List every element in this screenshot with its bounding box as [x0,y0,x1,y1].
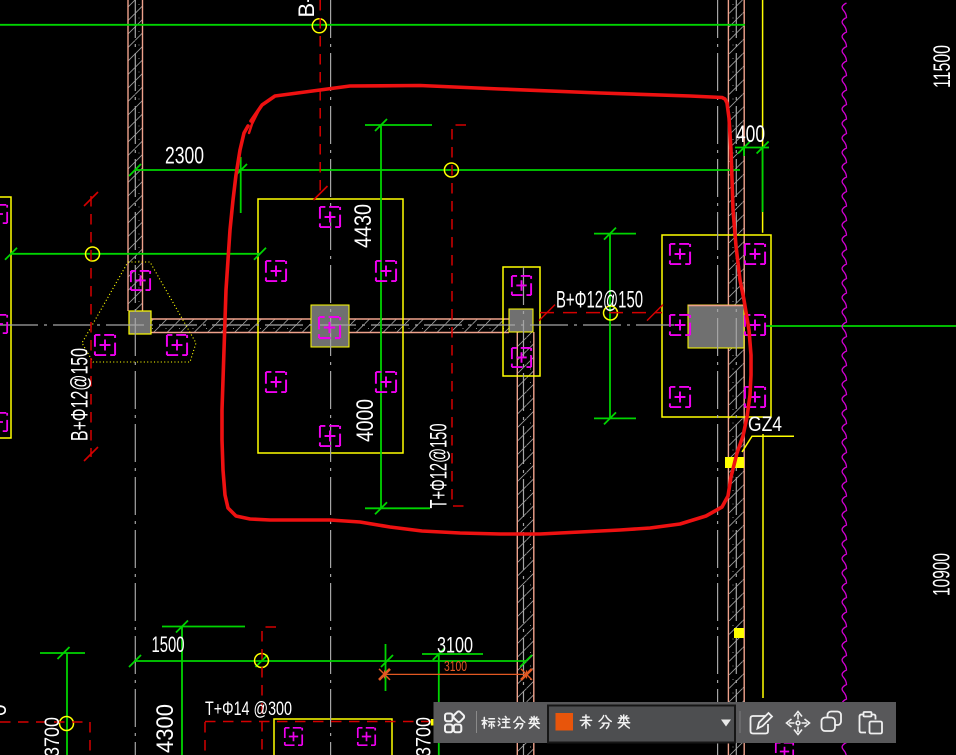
svg-text:2300: 2300 [165,143,204,170]
svg-text:4300: 4300 [152,704,179,753]
svg-text:T+Φ12@150: T+Φ12@150 [426,424,453,509]
svg-text:GZ4: GZ4 [748,413,782,436]
svg-text:B+Φ12@150: B+Φ12@150 [556,287,643,314]
svg-text:3700: 3700 [41,717,64,755]
svg-text:400: 400 [736,121,765,148]
svg-text:4000: 4000 [352,399,379,442]
svg-text:3100: 3100 [444,658,467,675]
svg-text:4430: 4430 [350,204,377,248]
svg-text:0: 0 [0,704,11,716]
svg-text:1500: 1500 [152,632,185,657]
svg-text:T+Φ14 @300: T+Φ14 @300 [205,699,292,720]
svg-text:B-: B- [294,0,319,18]
svg-text:B+Φ12@150: B+Φ12@150 [67,348,94,441]
svg-text:10900: 10900 [929,553,956,596]
svg-text:11500: 11500 [929,45,956,88]
svg-text:3100: 3100 [437,633,473,658]
